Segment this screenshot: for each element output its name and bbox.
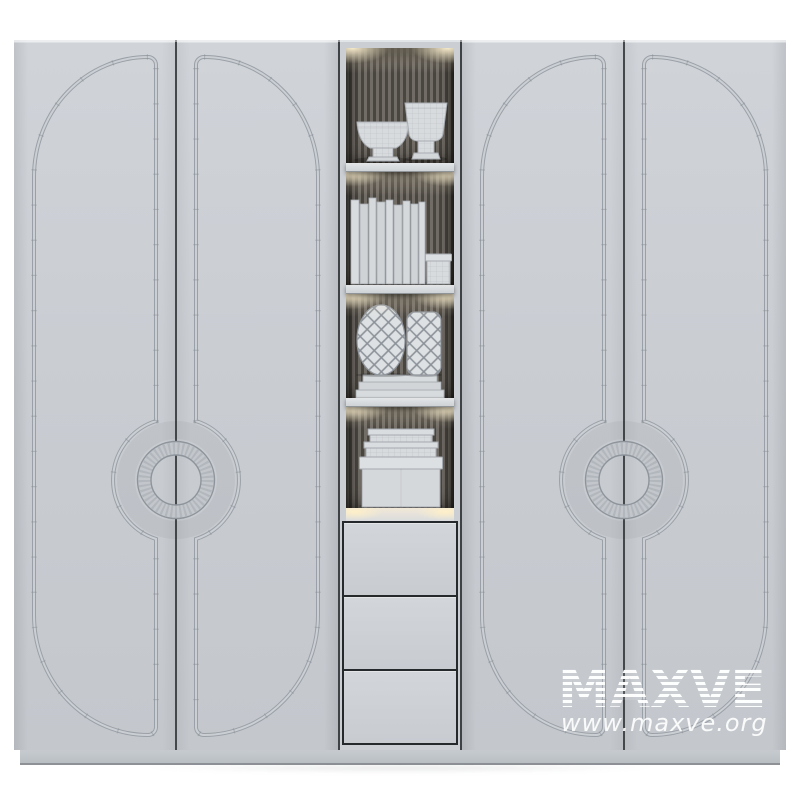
plinth-base <box>20 750 780 765</box>
door-design <box>14 40 338 750</box>
small-box <box>426 254 452 284</box>
pedestal-vase <box>357 122 409 161</box>
door-pair-left <box>14 40 338 750</box>
vases-graphic <box>346 48 454 163</box>
large-box <box>360 457 443 507</box>
shelf-section-books <box>346 171 454 285</box>
cylinder-lattice-vase <box>407 312 441 375</box>
boxes-graphic <box>346 407 454 508</box>
shelf <box>346 163 454 172</box>
niche-floor <box>346 508 454 521</box>
flat-book-stack <box>356 375 444 398</box>
goblet-vase <box>405 103 447 159</box>
ground-shadow <box>26 766 774 776</box>
shelf <box>346 398 454 407</box>
center-column <box>338 40 462 750</box>
shelf <box>346 285 454 294</box>
shelf-section-vases <box>346 48 454 163</box>
door-pair-right-graphic <box>462 40 786 750</box>
door-pair-right <box>462 40 786 750</box>
wardrobe <box>14 40 786 750</box>
door-design <box>462 40 786 750</box>
drawer-3 <box>344 671 456 743</box>
drawer-1 <box>344 523 456 595</box>
product-render: MAXVE www.maxve.org <box>0 0 800 800</box>
drawer-stack <box>342 521 458 745</box>
shelf-section-lattice-vases <box>346 294 454 398</box>
shelf-niche <box>346 48 454 521</box>
shelf-section-boxes <box>346 407 454 508</box>
flat-box-middle <box>364 442 438 458</box>
egg-lattice-vase <box>357 305 405 375</box>
book-row <box>351 198 425 284</box>
books-graphic <box>346 171 454 285</box>
door-pair-left-graphic <box>14 40 338 750</box>
lattice-vases-graphic <box>346 294 454 398</box>
flat-box-top <box>368 429 434 443</box>
drawer-2 <box>344 597 456 669</box>
